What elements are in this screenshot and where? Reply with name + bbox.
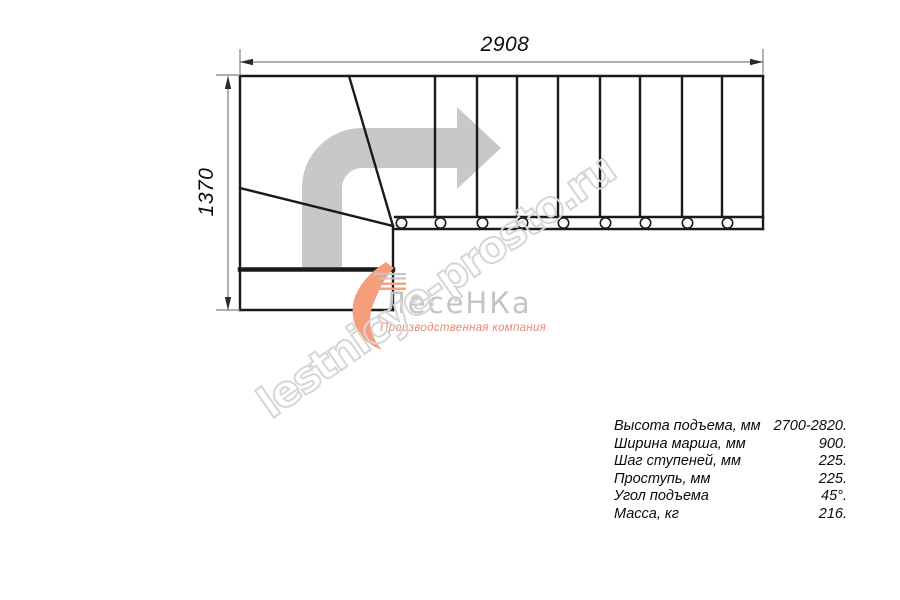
spec-row: Проступь, мм 225.: [614, 471, 847, 489]
spec-label: Проступь, мм: [614, 471, 710, 489]
spec-label: Угол подъема: [614, 488, 709, 506]
spec-label: Масса, кг: [614, 506, 679, 524]
spec-label: Шаг ступеней, мм: [614, 453, 741, 471]
spec-value: 216.: [819, 506, 847, 524]
spec-label: Высота подъема, мм: [614, 418, 761, 436]
spec-value: 225.: [819, 471, 847, 489]
spec-row: Угол подъема 45°.: [614, 488, 847, 506]
spec-row: Высота подъема, мм 2700-2820.: [614, 418, 847, 436]
tread-lines: [435, 76, 722, 217]
company-logo: ЛесеНКа Производственная компания: [340, 252, 570, 347]
width-dimension-label: 2908: [455, 33, 555, 57]
spec-value: 2700-2820.: [774, 418, 847, 436]
spec-value: 900.: [819, 436, 847, 454]
spec-value: 225.: [819, 453, 847, 471]
spec-value: 45°.: [821, 488, 847, 506]
spec-row: Масса, кг 216.: [614, 506, 847, 524]
specs-table: Высота подъема, мм 2700-2820. Ширина мар…: [614, 418, 847, 524]
spec-row: Ширина марша, мм 900.: [614, 436, 847, 454]
height-dimension-label: 1370: [195, 142, 219, 242]
turn-right-direction-arrow-icon: [302, 107, 501, 268]
spec-label: Ширина марша, мм: [614, 436, 746, 454]
spec-row: Шаг ступеней, мм 225.: [614, 453, 847, 471]
staircase-drawing-page: 2908 1370 ЛесеНКа Производственная компа…: [0, 0, 900, 600]
stringer-fastener-circles: [396, 218, 732, 228]
logo-company-name: ЛесеНКа: [384, 286, 532, 320]
logo-subtitle: Производственная компания: [380, 322, 546, 334]
